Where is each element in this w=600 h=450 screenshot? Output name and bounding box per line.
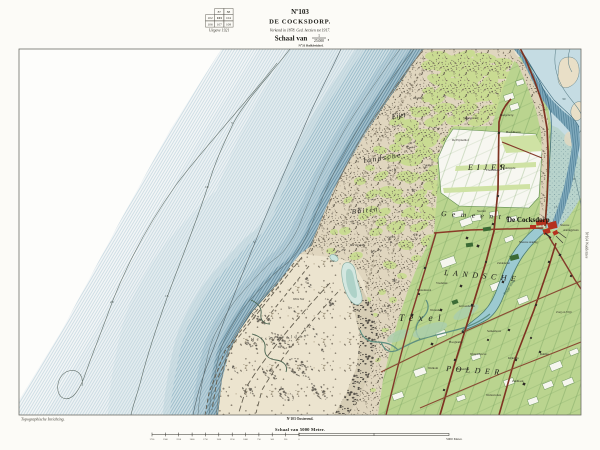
- svg-text:Zuidhoek: Zuidhoek: [512, 379, 524, 383]
- svg-text:Wapperhoeve: Wapperhoeve: [470, 352, 487, 356]
- svg-text:DE COCKSDORP.: DE COCKSDORP.: [269, 19, 331, 26]
- svg-text:Nº104 Waddenzee: Nº104 Waddenzee: [585, 232, 589, 259]
- svg-text:Nieuwe Aanleg: Nieuwe Aanleg: [519, 240, 538, 244]
- svg-text:20: 20: [110, 300, 114, 304]
- svg-text:Fonteinsnol: Fonteinsnol: [417, 288, 431, 292]
- svg-text:Nº31 Balkbrichel.: Nº31 Balkbrichel.: [299, 44, 324, 48]
- svg-text:5: 5: [231, 121, 233, 125]
- svg-text:Hoogeberg: Hoogeberg: [499, 113, 514, 117]
- svg-text:Nº103: Nº103: [291, 8, 309, 16]
- svg-text:Kijkduin: Kijkduin: [508, 356, 519, 360]
- svg-text:25.000: 25.000: [314, 39, 324, 43]
- svg-text:Verkend in 1878. Ged. herzien: Verkend in 1878. Ged. herzien tot 1917.: [270, 29, 331, 33]
- svg-text:Zanddijk: Zanddijk: [413, 96, 424, 100]
- svg-text:107: 107: [217, 22, 222, 26]
- svg-text:Aanlegplaats: Aanlegplaats: [563, 228, 579, 232]
- svg-text:Nº103 Oosterend.: Nº103 Oosterend.: [287, 417, 314, 421]
- svg-text:Gravenhoeve: Gravenhoeve: [459, 304, 476, 308]
- svg-text:Ruimzicht: Ruimzicht: [503, 166, 516, 170]
- svg-text:1: 1: [318, 34, 320, 38]
- svg-text:Korverskooi: Korverskooi: [349, 243, 365, 247]
- svg-text:5: 5: [253, 240, 255, 244]
- svg-text:Samenhorst: Samenhorst: [487, 329, 501, 333]
- svg-text:87: 87: [218, 10, 222, 14]
- svg-text:De Cocksdorp: De Cocksdorp: [507, 216, 550, 224]
- svg-text:Nol: Nol: [329, 259, 335, 263]
- svg-text:30: 30: [562, 97, 566, 101]
- svg-text:Witte Nol: Witte Nol: [293, 297, 304, 301]
- svg-text:103: 103: [217, 16, 222, 20]
- svg-text:Ruimte: Ruimte: [540, 352, 550, 356]
- svg-text:.: .: [328, 35, 330, 43]
- svg-text:108: 108: [226, 22, 231, 26]
- svg-text:Schaal van 5000 Meter.: Schaal van 5000 Meter.: [275, 427, 325, 432]
- svg-text:Nieuwe: Nieuwe: [560, 223, 570, 227]
- svg-text:106: 106: [208, 22, 213, 26]
- svg-text:Zeldenrust: Zeldenrust: [497, 261, 510, 265]
- svg-text:Hoofdhoeve: Hoofdhoeve: [506, 130, 521, 134]
- svg-text:Vredelust: Vredelust: [436, 281, 448, 285]
- svg-text:Welkom: Welkom: [428, 366, 439, 370]
- svg-text:De Eijckelhof: De Eijckelhof: [452, 138, 469, 142]
- svg-text:Weltevreden: Weltevreden: [486, 393, 502, 397]
- svg-text:15: 15: [165, 294, 169, 298]
- svg-text:Uitgave 1921: Uitgave 1921: [209, 29, 230, 33]
- svg-text:Texel: Texel: [399, 314, 446, 324]
- svg-text:102: 102: [208, 16, 213, 20]
- svg-text:104: 104: [226, 16, 231, 20]
- svg-text:Vogelenzang: Vogelenzang: [463, 116, 479, 120]
- svg-text:88: 88: [227, 10, 231, 14]
- svg-text:Buitenlust: Buitenlust: [457, 367, 470, 371]
- svg-text:Hoogkamp: Hoogkamp: [449, 340, 463, 344]
- svg-text:15: 15: [554, 205, 558, 209]
- svg-text:5000 Meter.: 5000 Meter.: [446, 437, 463, 441]
- svg-text:Topographische Inrichting.: Topographische Inrichting.: [21, 417, 65, 422]
- svg-text:Ebenhaezer: Ebenhaezer: [486, 168, 500, 172]
- svg-text:10: 10: [205, 185, 209, 189]
- svg-text:Werendel: Werendel: [430, 308, 442, 312]
- svg-text:Zorg en Vlijt: Zorg en Vlijt: [556, 310, 572, 314]
- svg-text:Vooruit: Vooruit: [477, 209, 486, 213]
- svg-text:Schaal van: Schaal van: [275, 35, 308, 43]
